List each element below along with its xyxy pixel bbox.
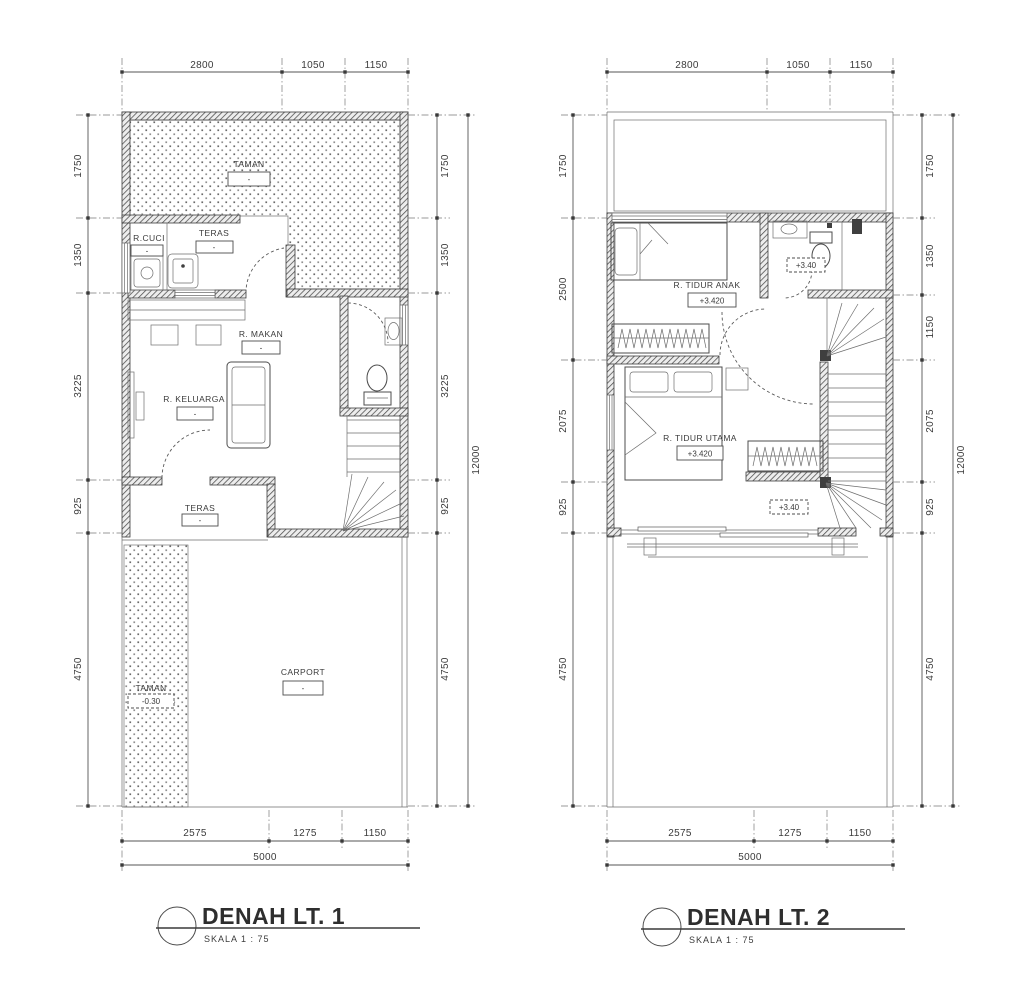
svg-text:-: - xyxy=(302,684,305,693)
dim-top-3: 1150 xyxy=(365,60,388,71)
stairs-ground xyxy=(343,415,404,531)
dim-top-1: 2800 xyxy=(190,60,214,71)
svg-text:-: - xyxy=(199,516,202,525)
plan2-scale: SKALA 1 : 75 xyxy=(689,935,755,945)
bath-level-label: +3.40 xyxy=(796,261,817,270)
sink-unit xyxy=(168,254,198,288)
dim-left-3: 2075 xyxy=(558,409,569,433)
dim-total-width: 5000 xyxy=(253,852,277,863)
dim-left-2: 2500 xyxy=(558,277,569,301)
room-label-teras: TERAS xyxy=(199,228,229,238)
window-laundry xyxy=(122,243,130,293)
dim-total-height: 12000 xyxy=(471,445,482,474)
dim-left-4: 925 xyxy=(73,497,84,515)
single-bed xyxy=(611,223,727,280)
dim-top-1: 2800 xyxy=(675,60,699,71)
window-bedroom-front xyxy=(612,213,727,222)
room-label-tiduranak: R. TIDUR ANAK xyxy=(674,280,741,290)
dim-bottom-1: 2575 xyxy=(668,828,692,839)
title-bubble xyxy=(158,907,196,945)
dim-bottom-3: 1150 xyxy=(364,828,387,839)
garden-top-area xyxy=(129,120,400,289)
dim-left-5: 4750 xyxy=(73,657,84,681)
kitchen-counter xyxy=(128,300,245,345)
plan2-roof-outline xyxy=(607,112,893,213)
svg-text:-: - xyxy=(248,175,251,184)
dim-total-height: 12000 xyxy=(956,445,967,474)
dim-bottom-2: 1275 xyxy=(778,828,802,839)
dim-right-1: 1750 xyxy=(925,154,936,178)
nightstand xyxy=(726,368,748,390)
dim-total-width: 5000 xyxy=(738,852,762,863)
dim-right-3: 3225 xyxy=(440,374,451,398)
plan1-scale: SKALA 1 : 75 xyxy=(204,934,270,944)
wardrobe-kids xyxy=(612,324,709,353)
plan1-title: DENAH LT. 1 xyxy=(202,903,345,929)
plan2-fixtures xyxy=(607,219,893,807)
dim-right-2: 1350 xyxy=(440,243,451,267)
room-label-taman: TAMAN xyxy=(233,159,264,169)
svg-text:+3.420: +3.420 xyxy=(688,450,713,459)
dim-right-5: 4750 xyxy=(440,657,451,681)
title-bubble xyxy=(643,908,681,946)
room-label-taman2: TAMAN xyxy=(135,683,166,693)
dim-right-5: 925 xyxy=(925,498,936,516)
dim-top-2: 1050 xyxy=(301,60,325,71)
room-label-rcuci: R.CUCI xyxy=(133,233,165,243)
dim-left-1: 1750 xyxy=(73,154,84,178)
floorplan-drawing: TAMAN - R.CUCI - TERAS - R. MAKAN - R. K… xyxy=(0,0,1024,997)
room-label-rmakan: R. MAKAN xyxy=(239,329,283,339)
double-bed xyxy=(625,367,722,480)
dim-right-1: 1750 xyxy=(440,154,451,178)
dim-left-2: 1350 xyxy=(73,243,84,267)
window-kitchen xyxy=(175,290,215,298)
svg-text:-: - xyxy=(146,247,149,256)
wardrobe-master xyxy=(748,441,823,471)
door-arc-kids xyxy=(720,309,766,355)
dim-left-4: 925 xyxy=(558,498,569,516)
stair-level-label: +3.40 xyxy=(779,503,800,512)
garden-side-strip xyxy=(124,545,188,807)
plan2-title-block: DENAH LT. 2 SKALA 1 : 75 xyxy=(641,904,905,946)
dim-right-6: 4750 xyxy=(925,657,936,681)
stairs-upper xyxy=(820,298,886,528)
dim-top-2: 1050 xyxy=(786,60,810,71)
washbasin xyxy=(385,318,402,345)
door-arc-bath xyxy=(348,303,388,343)
plan2-walls xyxy=(607,213,893,537)
dim-bottom-1: 2575 xyxy=(183,828,207,839)
toilet xyxy=(364,365,391,405)
bath-sink xyxy=(773,221,807,238)
dim-right-3: 1150 xyxy=(925,316,936,339)
room-label-carport: CARPORT xyxy=(281,667,325,677)
washing-machine xyxy=(131,256,163,290)
room-label-tidurutama: R. TIDUR UTAMA xyxy=(663,433,737,443)
plan2-dimensions: 2800 1050 1150 1750 2500 2075 925 4750 1… xyxy=(558,58,967,872)
room-label-rkeluarga: R. KELUARGA xyxy=(163,394,225,404)
dim-right-2: 1350 xyxy=(925,244,936,268)
dim-right-4: 2075 xyxy=(925,409,936,433)
sofa xyxy=(227,362,270,448)
svg-text:-: - xyxy=(213,243,216,252)
dim-bottom-2: 1275 xyxy=(293,828,317,839)
plan-2: R. TIDUR ANAK +3.420 +3.40 R. TIDUR UTAM… xyxy=(558,58,967,946)
water-heater xyxy=(852,219,862,234)
svg-text:-: - xyxy=(260,344,263,353)
svg-text:-0.30: -0.30 xyxy=(142,697,161,706)
svg-text:-: - xyxy=(194,410,197,419)
svg-text:+3.420: +3.420 xyxy=(700,297,725,306)
room-label-teras2: TERAS xyxy=(185,503,215,513)
door-arc-living xyxy=(162,430,210,478)
dim-top-3: 1150 xyxy=(850,60,873,71)
window-master-side xyxy=(607,395,614,450)
dim-bottom-3: 1150 xyxy=(849,828,872,839)
dim-left-1: 1750 xyxy=(558,154,569,178)
dim-left-3: 3225 xyxy=(73,374,84,398)
yard-boundary-2 xyxy=(607,537,893,807)
plan1-title-block: DENAH LT. 1 SKALA 1 : 75 xyxy=(156,903,420,945)
plan2-title: DENAH LT. 2 xyxy=(687,904,830,930)
plan-1: TAMAN - R.CUCI - TERAS - R. MAKAN - R. K… xyxy=(73,58,482,945)
dim-left-5: 4750 xyxy=(558,657,569,681)
dim-right-4: 925 xyxy=(440,497,451,515)
window-bathroom xyxy=(400,305,408,345)
floorplan-sheet: TAMAN - R.CUCI - TERAS - R. MAKAN - R. K… xyxy=(0,0,1024,997)
door-arc-entry xyxy=(246,248,284,293)
